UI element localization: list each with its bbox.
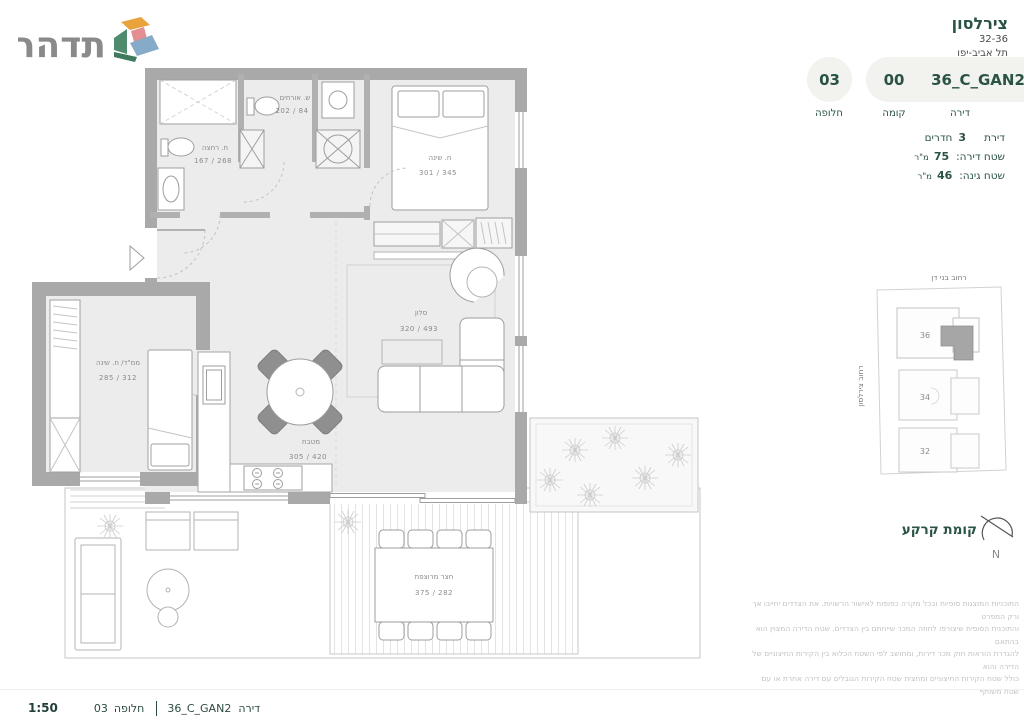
footer-apt-value: 36_C_GAN2 xyxy=(167,702,231,715)
courtyard-dims: 375 / 282 xyxy=(415,589,453,597)
project-name: צירלסון xyxy=(952,14,1008,33)
salon-label: סלון xyxy=(415,309,428,317)
floor-plan-sheet: תדהר צירלסון 32-36 תל אביב-יפו 03 00 36_… xyxy=(0,0,1024,725)
disclaimer-line: להגדרת הוראות חוק מכר דירות, ומחושב לפי … xyxy=(751,648,1019,673)
bedroom-closet xyxy=(374,218,512,248)
scale-value: 1:50 xyxy=(28,701,58,715)
single-bed xyxy=(148,350,192,470)
apartment-value: 36_C_GAN2 xyxy=(922,71,1024,89)
floor-value: 00 xyxy=(866,71,922,89)
floor-plan-drawing: חצר מרוצפת 375 / 282 xyxy=(30,60,720,665)
wc-sink xyxy=(322,82,354,118)
footer-divider xyxy=(156,701,157,716)
street-top-label: רחוב בני דן xyxy=(931,273,966,282)
sheet-footer: 1:50 03 חלופה 36_C_GAN2 דירה xyxy=(0,689,1024,725)
floor-label: קומה xyxy=(882,108,905,119)
double-bed xyxy=(392,86,488,210)
garden-area-value: 46 xyxy=(937,169,952,182)
rooms-count: 3 xyxy=(958,131,966,144)
detail-garden-area: שטח גינה: 46 מ"ר xyxy=(895,169,1005,182)
sliding-door xyxy=(330,492,515,504)
kitchen-label: מטבח xyxy=(302,438,320,446)
building-34: 34 xyxy=(899,370,979,420)
building-34-number: 34 xyxy=(920,393,930,402)
garden-area-unit: מ"ר xyxy=(917,172,931,182)
project-header: צירלסון 32-36 תל אביב-יפו xyxy=(952,14,1008,60)
footer-apt-label: דירה xyxy=(238,702,260,715)
kitchen-dims: 305 / 420 xyxy=(289,453,327,461)
legal-disclaimer: התוכניות המוצגות סופיות ובכל מקרה כפופות… xyxy=(751,598,1019,698)
dining-table xyxy=(256,348,344,436)
building-36: 36 xyxy=(897,308,979,360)
disclaimer-line: התוכניות המוצגות סופיות ובכל מקרה כפופות… xyxy=(751,598,1019,623)
garden-area-label: שטח גינה: xyxy=(959,170,1005,182)
entrance-arrow-icon xyxy=(130,246,144,270)
disclaimer-line: והתוכנית הסופית שיצורפו לחוזה המכר שייחת… xyxy=(751,623,1019,648)
apartment-area-label: שטח דירה: xyxy=(956,151,1005,163)
north-arrow: N xyxy=(972,506,1022,564)
bathroom-sink xyxy=(158,168,184,210)
guest-wc-dims: 202 / 84 xyxy=(275,107,308,115)
guest-wc-label: ש. אורחים xyxy=(280,94,311,102)
apartment-area-value: 75 xyxy=(934,150,949,163)
building-32: 32 xyxy=(899,428,979,472)
bedroom-dims: 301 / 345 xyxy=(419,169,457,177)
mamad-wardrobe xyxy=(50,300,80,472)
footer-alt-label: חלופה xyxy=(114,702,145,715)
alternative-value: 03 xyxy=(819,71,840,89)
bedroom-label: ח. שינה xyxy=(429,154,452,162)
mamad-dims: 285 / 312 xyxy=(99,374,137,382)
footer-alt-value: 03 xyxy=(94,702,108,715)
alternative-badge: 03 xyxy=(807,57,852,102)
unit-badge-pill: 00 36_C_GAN2 xyxy=(866,57,1024,102)
alternative-label: חלופה xyxy=(815,108,843,119)
bathroom-label: ח. רחצה xyxy=(202,144,228,152)
rooms-prefix: דירת xyxy=(984,132,1005,144)
detail-rooms: דירת 3 חדרים xyxy=(895,131,1005,144)
building-36-number: 36 xyxy=(920,331,930,340)
garden-planter xyxy=(530,418,698,512)
mamad-room: ממ"ד/ ח. שינה 285 / 312 xyxy=(32,282,210,486)
detail-apartment-area: שטח דירה: 75 מ"ר xyxy=(895,150,1005,163)
site-plan: רחוב בני דן רחוב צירלסון 36 34 32 xyxy=(853,268,1021,490)
terrace-area: חצר מרוצפת 375 / 282 xyxy=(65,488,700,658)
toilet xyxy=(161,138,194,156)
street-left-label: רחוב צירלסון xyxy=(856,365,865,406)
project-address-numbers: 32-36 xyxy=(952,33,1008,47)
rooms-suffix: חדרים xyxy=(925,132,953,144)
salon-dims: 320 / 493 xyxy=(400,325,438,333)
apartment-label: דירה xyxy=(950,108,970,119)
building-32-number: 32 xyxy=(920,447,930,456)
house-icon xyxy=(114,17,159,62)
toilet xyxy=(247,97,279,115)
apartment-area-unit: מ"ר xyxy=(914,153,928,163)
courtyard-label: חצר מרוצפת xyxy=(415,573,454,581)
bathroom-dims: 167 / 268 xyxy=(194,157,232,165)
mamad-label: ממ"ד/ ח. שינה xyxy=(96,359,140,367)
coffee-table xyxy=(382,340,442,364)
north-label: N xyxy=(992,548,1000,561)
floor-note: קומת קרקע xyxy=(902,522,977,538)
